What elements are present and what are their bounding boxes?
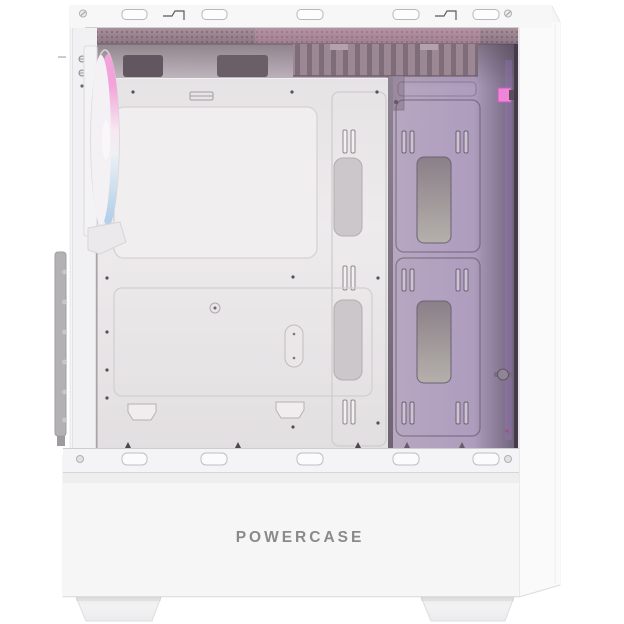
rear-panel xyxy=(393,44,518,450)
mount-tab xyxy=(128,404,156,420)
cpu-cutout xyxy=(114,107,317,258)
ceiling-cutout xyxy=(123,55,163,77)
drive-tray-cutout xyxy=(417,301,451,383)
cable-comb xyxy=(293,44,478,76)
bottom-rail xyxy=(63,448,519,473)
rim-slot xyxy=(122,10,147,20)
rail-hole xyxy=(77,456,84,463)
rail-slot xyxy=(473,453,499,465)
top-vent-mesh xyxy=(90,28,518,44)
rim-slot xyxy=(297,10,323,20)
top-rim xyxy=(70,6,552,28)
rgb-glow-strip xyxy=(505,60,512,440)
rgb-glow xyxy=(255,28,480,44)
rim-slot xyxy=(393,10,419,20)
cable-grommet xyxy=(334,300,362,380)
rim-slot xyxy=(473,10,499,20)
cable-grommet xyxy=(334,158,362,236)
mount-tab xyxy=(276,402,304,418)
rail-slot xyxy=(393,453,419,465)
rim-slot xyxy=(202,10,227,20)
rail-slot xyxy=(297,453,323,465)
fan-hub-highlight xyxy=(102,120,110,160)
ssd-mount-slot xyxy=(285,325,303,367)
rear-exterior-panel xyxy=(519,22,560,597)
rail-hole xyxy=(505,456,512,463)
pc-case-illustration: POWERCASE xyxy=(0,0,624,624)
front-panel-clips xyxy=(55,252,67,446)
lower-front-panel: POWERCASE xyxy=(63,473,519,597)
argb-connector xyxy=(498,88,514,102)
ceiling-cutout xyxy=(217,55,268,77)
case-feet xyxy=(76,597,514,621)
case-interior xyxy=(58,28,518,450)
product-image: POWERCASE xyxy=(0,0,624,624)
drive-tray-cutout xyxy=(417,157,451,243)
rail-slot xyxy=(201,453,227,465)
indicator-dot xyxy=(505,429,508,432)
brand-logo: POWERCASE xyxy=(236,529,365,546)
rail-slot xyxy=(122,453,147,465)
panel-seam xyxy=(388,78,393,450)
